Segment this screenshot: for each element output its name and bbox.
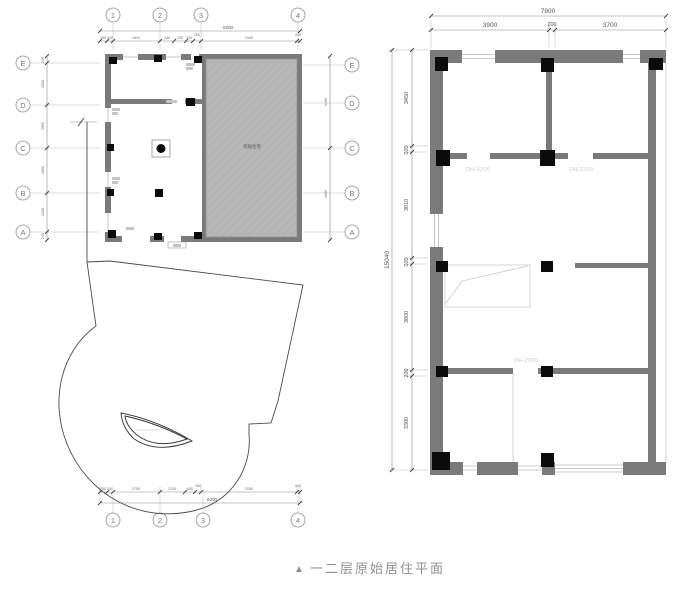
interior-wall — [546, 63, 552, 153]
dimension-left: 15040 3450 200 3810 200 3800 200 3380 — [384, 48, 428, 472]
columns — [107, 55, 202, 240]
grid-bubbles-right: E D C B A — [345, 58, 359, 239]
dim-seg: 240 — [295, 33, 301, 37]
grid-bubble-label: A — [20, 228, 25, 237]
door-labels: DH-2200 DH-2200 DH-2200 — [466, 167, 593, 364]
column — [107, 144, 114, 151]
column — [154, 233, 162, 240]
tiny-annotation-smudge — [112, 108, 120, 111]
dim-seg: 1300 — [41, 208, 45, 216]
building-walls: 邻居住宅 — [105, 54, 302, 248]
window-opening — [462, 50, 495, 63]
caption: ▲ 一二层原始居住平面 — [294, 561, 445, 576]
dim-seg: 200 — [404, 257, 410, 266]
dim-seg: 3700 — [603, 22, 618, 29]
right-floor-plan: 7800 3900 200 3700 15040 3450 200 3810 2… — [384, 8, 668, 475]
interior-wall — [490, 153, 568, 159]
column — [194, 56, 202, 63]
dim-seg: 3800 — [404, 311, 410, 323]
grid-bubbles-bottom: 1 2 3 4 — [106, 513, 305, 527]
pond-shape — [121, 413, 192, 447]
window-opening — [623, 50, 640, 63]
dim-seg: 1500 — [41, 80, 45, 88]
stairs-box — [445, 265, 530, 307]
window-opening — [430, 214, 443, 247]
column — [107, 189, 114, 196]
tiny-annotation-smudge — [112, 112, 118, 115]
tiny-annotation-smudge — [112, 177, 120, 180]
tiny-annotation-smudge — [126, 227, 134, 230]
column — [186, 98, 195, 106]
interior-wall — [445, 368, 513, 374]
grid-bubble-label: D — [349, 99, 355, 108]
tiny-annotation-smudge — [173, 244, 181, 247]
column — [436, 150, 450, 166]
grid-bubbles-top: 1 2 3 4 — [106, 8, 305, 22]
column — [432, 452, 450, 470]
window-opening — [518, 462, 542, 475]
window-opening — [463, 462, 477, 475]
drawing-sheet: 1 2 3 4 1 2 3 4 E D C B — [0, 0, 674, 590]
dim-seg: 200 — [404, 368, 410, 377]
dim-seg: 150 — [100, 36, 106, 40]
dim-total: 6200 — [223, 25, 234, 30]
grid-bubble-label: 1 — [111, 516, 115, 525]
interior-wall — [575, 263, 648, 268]
dim-seg: 3150 — [245, 487, 253, 491]
grid-bubble-label: 2 — [158, 11, 162, 20]
dim-seg: 630 — [187, 487, 193, 491]
caption-marker: ▲ — [294, 564, 304, 575]
dim-seg: 3900 — [483, 22, 498, 29]
column — [541, 261, 553, 272]
door-height-label: DH-2200 — [466, 167, 490, 173]
column — [108, 230, 116, 238]
grid-bubble-label: 4 — [296, 516, 300, 525]
dim-seg: 200 — [404, 145, 410, 154]
column — [436, 261, 448, 272]
dim-seg: 1610 — [132, 36, 140, 40]
grid-bubble-label: 2 — [158, 516, 162, 525]
stairs-outline — [445, 265, 530, 307]
column — [541, 58, 554, 72]
column — [109, 57, 117, 64]
dim-total: 6200 — [207, 497, 218, 502]
grid-bubble-label: E — [349, 61, 354, 70]
dim-seg: 3810 — [404, 199, 410, 211]
dim-seg: 3450 — [404, 92, 410, 104]
column — [649, 58, 663, 70]
dim-seg: 200 — [194, 33, 200, 37]
tiny-annotation-smudge — [166, 100, 177, 103]
grid-bubble-label: E — [20, 59, 25, 68]
dim-seg: 3150 — [245, 36, 253, 40]
column — [541, 453, 554, 467]
grid-bubbles-left: E D C B A — [16, 56, 30, 239]
dim-seg: 240 — [107, 36, 113, 40]
grid-bubble-label: B — [20, 189, 25, 198]
hatched-area-label: 邻居住宅 — [243, 143, 261, 150]
dim-seg: 240 — [41, 57, 45, 63]
grid-bubble-label: C — [20, 144, 26, 153]
column — [540, 150, 555, 166]
grid-bubble-label: C — [349, 144, 355, 153]
door-opening — [164, 236, 181, 242]
column — [154, 55, 162, 62]
caption-text: 一二层原始居住平面 — [310, 561, 445, 576]
tiny-annotation-smudge — [112, 181, 118, 184]
column — [541, 366, 553, 377]
grid-bubble-label: D — [20, 101, 26, 110]
dimension-top: 6200 150 240 1610 240 730 240 200 3150 2… — [98, 25, 302, 43]
grid-bubble-label: 3 — [201, 516, 205, 525]
dim-seg: 3380 — [404, 417, 410, 429]
grid-bubble-label: 4 — [296, 11, 300, 20]
dim-total: 7800 — [541, 8, 556, 15]
column — [436, 366, 448, 377]
round-column — [157, 144, 166, 153]
stairs-break-line — [446, 266, 528, 303]
floorplan-canvas: 1 2 3 4 1 2 3 4 E D C B — [0, 0, 674, 590]
dim-seg: 240 — [295, 484, 301, 488]
column — [194, 232, 202, 239]
dim-seg: 1600 — [41, 166, 45, 174]
grid-bubble-label: 1 — [111, 11, 115, 20]
tiny-annotation-smudge — [186, 67, 193, 70]
dimension-bottom: 150 240 1750 2130 630 160 3150 240 6200 — [98, 484, 302, 505]
tiny-annotation-smudge — [186, 63, 195, 66]
column — [155, 189, 163, 197]
interior-wall — [538, 368, 648, 374]
door-height-label: DH-2200 — [569, 167, 593, 173]
dim-seg: 1500 — [41, 122, 45, 130]
interior-wall — [593, 153, 648, 159]
site-outline — [59, 261, 303, 514]
door-height-label: DH-2200 — [514, 358, 538, 364]
left-floor-plan: 1 2 3 4 1 2 3 4 E D C B — [16, 8, 359, 527]
dim-seg: 3450 — [324, 98, 328, 106]
door-opening — [122, 236, 150, 242]
grid-line-top — [113, 22, 298, 50]
dim-seg: 240 — [164, 36, 170, 40]
dim-seg: 200 — [547, 22, 556, 28]
column — [435, 57, 448, 71]
dim-seg: 160 — [195, 484, 201, 488]
dimension-top: 7800 3900 200 3700 — [429, 8, 668, 48]
dim-seg: 240 — [186, 36, 192, 40]
dim-seg: 240 — [41, 233, 45, 239]
dim-seg: 730 — [177, 36, 183, 40]
dim-seg: 1750 — [132, 487, 140, 491]
dim-seg: 3450 — [324, 190, 328, 198]
grid-bubble-label: B — [349, 189, 354, 198]
dim-seg: 240 — [107, 487, 113, 491]
grid-bubble-label: 3 — [199, 11, 203, 20]
dim-total: 15040 — [384, 251, 391, 269]
dim-seg: 2130 — [168, 487, 176, 491]
grid-line-right — [303, 65, 345, 232]
grid-bubble-label: A — [349, 228, 354, 237]
wall-segment — [648, 63, 656, 462]
